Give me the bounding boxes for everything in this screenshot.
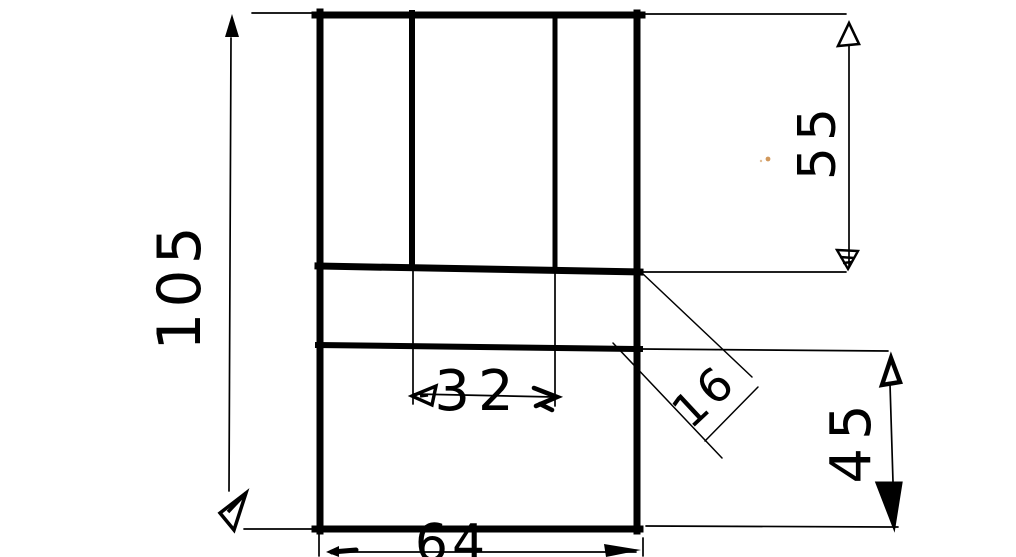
dimension-line-45 (890, 384, 893, 482)
arrow-up-55-icon (838, 23, 859, 46)
arrow-down-105-icon (220, 493, 246, 530)
part-outline (315, 12, 642, 531)
arrow-up-105-icon (225, 14, 239, 37)
dimension-label-upper-section-height: 55 (788, 86, 848, 196)
inner-divider-lower (318, 345, 640, 349)
arrow-right-64-icon (604, 544, 641, 557)
dimensioned-sketch: 105 55 32 16 45 64 (0, 0, 1016, 557)
arrow-left-64-icon (326, 546, 356, 557)
extension-lower-right-top (641, 349, 888, 351)
dimension-label-slot-width: 32 (413, 360, 543, 424)
dimension-label-lower-section-height: 45 (820, 380, 884, 500)
dimension-label-overall-height: 105 (145, 211, 215, 361)
stray-mark (760, 157, 771, 163)
dimension-line-105 (229, 38, 231, 491)
inner-divider-upper (318, 266, 640, 272)
arrow-down-55-icon (837, 250, 858, 269)
extension-bottom-right (646, 526, 898, 527)
dimension-label-overall-width: 64 (392, 518, 512, 557)
arrow-up-45-icon (882, 358, 900, 385)
